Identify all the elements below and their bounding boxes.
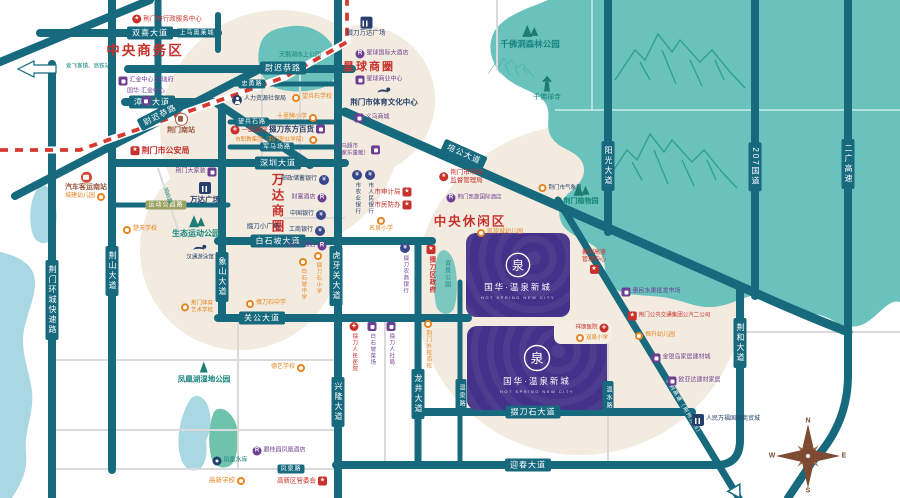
poi-label: 荆门大家装 — [175, 168, 205, 175]
orange-icon — [237, 477, 245, 485]
poi-label: 双泉小学 — [586, 335, 608, 342]
map-poi: 城建幼儿园 — [65, 193, 105, 201]
poi-label: 掇刀小广场 — [247, 223, 280, 231]
trees-icon — [572, 182, 591, 197]
poi-label: 襄荆高速管理中心 — [582, 250, 606, 264]
poi-label: 千佛洞森林公园 — [500, 39, 560, 49]
poi-label: 荆门市体育文化中心 — [350, 98, 418, 107]
poi-label: 掇刀石小学 — [315, 262, 322, 295]
map-poi: 金马超市（家乐量贩） — [336, 143, 380, 156]
orange-icon — [97, 193, 105, 201]
star-badge-icon — [403, 188, 412, 197]
dot-icon — [212, 457, 221, 466]
road-name-badge: 阳光大道 — [602, 141, 615, 191]
map-poi: 碧桂园凤凰酒店 — [252, 447, 305, 456]
poi-label: 市民防办 — [375, 201, 401, 209]
poi-label: 高新学校 — [209, 477, 235, 485]
poi-label: 义乌商城 — [365, 114, 389, 121]
map-poi: 楚天学校 — [123, 226, 157, 234]
poi-label: 名泉小学 — [369, 226, 393, 233]
bank-icon — [316, 210, 326, 220]
map-poi: 荆门市体育文化中心 — [350, 88, 418, 107]
road-name-badge: 凤泉路 — [277, 465, 304, 474]
labels-layer: 中央商务区星球商圈中央休闲区万达商圈双喜大道上马奥莱城漳河大道尉迟恭路尉迟恭路忠… — [0, 0, 900, 498]
star-badge-icon — [589, 265, 598, 274]
shop-icon — [371, 146, 380, 155]
map-poi: 名泉小学 — [369, 217, 393, 233]
poi-label: 望兵石学校 — [302, 94, 332, 101]
compass-east-label: E — [842, 453, 847, 460]
poi-label: 财富酒店 — [291, 194, 315, 201]
map-poi: 荆门公共交通集团公汽二公司 — [628, 312, 711, 321]
map-poi: 襄荆高速管理中心 — [582, 250, 606, 274]
poi-label: 荆门外校南校 — [425, 330, 432, 369]
shop-icon — [119, 77, 128, 86]
tree1-icon — [199, 361, 210, 374]
map-poi: 义乌商城 — [354, 114, 389, 123]
poi-label: 凤凰水库 — [223, 457, 247, 464]
map-poi: 千佛洞森林公园 — [500, 23, 560, 49]
poi-label: 一医南院 — [242, 126, 268, 134]
bank-icon — [319, 175, 329, 185]
poi-label: 凯旋城幼儿园 — [487, 229, 523, 236]
orange-icon — [297, 364, 305, 372]
orange-icon — [635, 332, 643, 340]
compass-north-label: N — [805, 418, 810, 425]
orange-icon — [576, 334, 584, 342]
map-poi: 市审计局 — [375, 188, 412, 197]
poi-label: 恒升幼儿园 — [645, 332, 675, 339]
map-poi: 国华·汇金中心 — [127, 88, 165, 105]
poi-label: 汽车客运南站 — [65, 184, 107, 192]
poi-label: 万达广场 — [190, 195, 220, 204]
road-name-badge: 掇刀石大道 — [506, 406, 561, 419]
poi-label: 掇刀区政府 — [427, 256, 435, 294]
map-poi: 掇刀小广场 — [247, 223, 280, 231]
road-name-badge: 荆和大道 — [734, 318, 747, 368]
map-poi: 金王子酒店 — [285, 242, 326, 251]
star-badge-icon — [318, 477, 327, 486]
poi-label: 人力资源社保局 — [244, 96, 286, 103]
map-poi: 市人民银行 — [365, 170, 375, 215]
poi-label: 汇金中心·金瑞府 — [130, 77, 174, 84]
poi-label: 德艺学校 — [271, 364, 295, 371]
road-name-badge: 深圳大道 — [255, 157, 301, 170]
poi-label: 荆门凯旋国际酒店 — [457, 195, 501, 202]
star-badge-icon — [628, 312, 637, 321]
poi-label: 城建幼儿园 — [65, 193, 95, 200]
map-poi: 荆门南站 — [167, 113, 195, 135]
road-name-badge: 上马奥莱城 — [176, 29, 217, 38]
poi-label: 欧亚达建材家居 — [678, 377, 720, 384]
dotcircle-icon — [538, 184, 546, 192]
map-poi: 十里牌小学 — [277, 114, 317, 122]
road-name-badge: 龙井大道 — [412, 369, 425, 419]
map-poi: 凤凰水库 — [212, 457, 247, 466]
map-poi: 荆门植物园 — [564, 182, 599, 206]
road-name-badge: 关公大道 — [239, 312, 285, 325]
shop-icon — [316, 125, 325, 134]
bank-icon — [400, 243, 410, 253]
map-poi: 汽车客运南站 — [65, 172, 107, 192]
shop-icon — [354, 114, 363, 123]
road-name-badge: 襄荆高速（荆州方向） — [664, 379, 702, 438]
map-poi: 荆门市公安局 — [131, 146, 190, 156]
poi-label: 市人民银行 — [367, 182, 374, 215]
road-name-badge: 荆山大道 — [106, 246, 119, 296]
building-icon — [692, 414, 704, 426]
map-poi: 荆门体育艺术学校 — [181, 300, 213, 313]
poi-label: 荆门植物园 — [564, 198, 599, 206]
map-poi: 双泉公园 — [442, 260, 449, 288]
poi-label: 楚天学校 — [133, 226, 157, 233]
map-poi: 中国银行 — [290, 210, 326, 220]
poi-label: 凤凰湖湿地公园 — [178, 375, 231, 384]
shop-icon — [208, 168, 217, 177]
poi-label: 市审计局 — [375, 188, 401, 196]
map-poi: 邮政储蓄银行 — [281, 175, 329, 185]
trees-icon — [187, 213, 206, 228]
map-poi: 人力资源社保局 — [232, 95, 286, 105]
poi-label: 星球国际大酒店 — [366, 50, 408, 57]
hotel-icon — [446, 194, 455, 203]
shop-icon — [667, 377, 676, 386]
poi-label: 掇刀农商银行 — [402, 255, 409, 294]
building-icon — [199, 182, 211, 194]
map-poi: 荆门外校南校 — [424, 320, 432, 369]
road-name-badge: 虎牙关大道 — [330, 246, 343, 306]
cross-icon — [231, 126, 240, 135]
star-badge-icon — [403, 201, 412, 210]
map-poi: 荆门市市场监督管理局 — [439, 169, 483, 185]
poi-label: 掇刀人民医院 — [351, 333, 358, 372]
poi-label: 掇刀东方百货 — [269, 125, 314, 134]
map-poi: 市民防办 — [375, 201, 412, 210]
poi-label: 荆门体育艺术学校 — [191, 300, 213, 313]
map-poi: 掇刀区政府 — [427, 245, 436, 294]
poi-label: 白石坡中学 — [300, 268, 307, 301]
poi-label: 惠民水果批发市场 — [632, 288, 680, 295]
bank-icon — [352, 170, 362, 180]
road-name-badge: 双喜大道 — [127, 27, 173, 40]
map-poi: 白石坡中学 — [299, 258, 307, 301]
pagoda-icon — [540, 76, 554, 93]
map-poi: 一医南院 — [231, 126, 268, 135]
map-poi: 爱飞客镇、高铁站 — [66, 64, 110, 71]
poi-label: 金银岛家居建材城 — [662, 354, 710, 361]
poi-label: 荆门市行政服务中心 — [143, 15, 202, 23]
orange-icon — [314, 252, 322, 260]
orange-icon — [299, 258, 307, 266]
bank-icon — [315, 226, 325, 236]
star-badge-icon — [427, 245, 436, 254]
orange-icon — [477, 229, 485, 237]
map-poi: 掇刀农商银行 — [400, 243, 410, 294]
map-poi: 望兵石学校 — [292, 94, 332, 102]
map-poi: 恒升幼儿园 — [635, 332, 675, 340]
poi-label: 中国银行 — [290, 211, 314, 218]
bus-icon — [81, 172, 92, 183]
hotel-icon — [318, 194, 327, 203]
road-name-badge: 207国道 — [749, 142, 762, 191]
swim-icon — [193, 245, 207, 254]
poi-label: 荆门南站 — [167, 127, 195, 135]
circle-star-icon — [439, 173, 448, 182]
orange-icon — [309, 136, 317, 144]
map-poi: 汇金中心·金瑞府 — [119, 77, 174, 86]
map-poi: 荆门市行政服务中心 — [132, 15, 202, 24]
shop-icon — [142, 97, 151, 106]
poi-label: 邮政储蓄银行 — [281, 176, 317, 183]
poi-label: 汉通游泳馆 — [186, 255, 214, 262]
poi-label: 人民万福国际商贸城 — [706, 416, 760, 423]
orange-icon — [123, 226, 131, 234]
poi-label: 白石坡菜场 — [369, 333, 376, 366]
shop-icon — [387, 322, 396, 331]
orange-icon — [424, 320, 432, 328]
compass-west-label: W — [769, 453, 776, 460]
poi-label: 掇刀万达广场 — [347, 30, 386, 38]
map-poi: 市农业银行 — [352, 170, 362, 215]
map-poi: 双泉小学 — [576, 334, 608, 342]
compass-south-label: S — [806, 488, 811, 495]
map-poi: 掇刀万达广场 — [347, 17, 386, 38]
poi-label: 金王子酒店 — [285, 242, 315, 249]
orange-icon — [246, 300, 254, 308]
trees-icon — [520, 23, 539, 38]
road-name-badge: 温泉路 — [456, 379, 467, 413]
circle-star-icon — [132, 15, 141, 24]
train-icon — [175, 113, 188, 126]
map-poi: 万达广场 — [190, 182, 220, 204]
map-poi: 人民万福国际商贸城 — [692, 414, 760, 426]
map-poi: 高新区管委会 — [277, 477, 327, 486]
map-poi: 金银岛家居建材城 — [651, 354, 710, 363]
poi-label: 双泉公园 — [442, 260, 449, 288]
map-poi: 德艺学校 — [271, 364, 305, 372]
poi-label: 荆门公共交通集团公汽二公司 — [639, 313, 711, 320]
orange-icon — [377, 217, 385, 225]
poi-label: 天鹅湖水上公园 — [279, 52, 321, 59]
shop-icon — [355, 76, 364, 85]
poi-label: 星球商业中心 — [366, 76, 402, 83]
map-poi: 凯旋城幼儿园 — [477, 229, 523, 237]
map-poi: 天鹅湖水上公园 — [279, 52, 321, 59]
map-poi: 欧亚达建材家居 — [667, 377, 720, 386]
district-zone-label: 星球商圈 — [343, 58, 395, 74]
bank-icon — [365, 170, 375, 180]
cross-icon — [350, 322, 359, 331]
map-poi: 千佛禅寺 — [533, 76, 561, 102]
poi-label: 工商银行 — [289, 227, 313, 234]
map-poi: 荆门大家装 — [175, 168, 216, 177]
poi-label: 十里牌小学 — [277, 114, 307, 121]
location-map: 泉 国华·温泉新城 HOT SPRING NEW CITY 泉 国华·温泉新城 … — [0, 0, 900, 498]
hotel-icon — [252, 447, 261, 456]
road-name-badge: 二广高速 — [842, 139, 855, 189]
person-icon — [232, 95, 242, 105]
poi-label: 高新区管委会 — [277, 477, 316, 485]
orange-icon — [309, 114, 317, 122]
road-name-badge: 迎春大道 — [505, 459, 551, 472]
orange-icon — [181, 303, 189, 311]
map-poi: 高新学校 — [209, 477, 245, 485]
map-poi: 市职教集团（荆门职业学院） — [235, 136, 317, 144]
hotel-icon — [355, 50, 364, 59]
poi-label: 荆门市公安局 — [142, 146, 190, 156]
star-badge-icon — [131, 147, 140, 156]
map-poi: 惠民水果批发市场 — [621, 288, 680, 297]
road-name-badge: 荆门环城快速路 — [46, 260, 59, 340]
road-name-badge: 忠勇路 — [238, 80, 265, 89]
poi-label: 祥康医院 — [575, 325, 597, 332]
poi-label: 市农业银行 — [354, 182, 361, 215]
district-zone-label: 中央休闲区 — [434, 211, 507, 230]
shop-icon — [651, 354, 660, 363]
poi-label: 市职教集团（荆门职业学院） — [235, 137, 307, 144]
poi-label: 生态运动公园 — [172, 229, 220, 239]
map-poi: 掇刀东方百货 — [269, 125, 325, 134]
poi-label: 国华·汇金中心 — [127, 88, 165, 95]
poi-label: 碧桂园凤凰酒店 — [263, 447, 305, 454]
road-name-badge: 温水路 — [603, 381, 614, 415]
poi-label: 爱飞客镇、高铁站 — [66, 64, 110, 71]
district-zone-label: 中央商务区 — [106, 39, 184, 59]
map-poi: 财富酒店 — [291, 194, 326, 203]
poi-label: 掇刀石中学 — [256, 300, 286, 307]
map-poi: 星球商业中心 — [355, 76, 402, 85]
map-poi: 生态运动公园 — [172, 213, 220, 239]
cross-icon — [600, 324, 609, 333]
road-name-badge: 尉迟恭路 — [260, 62, 306, 75]
poi-label: 金马超市（家乐量贩） — [336, 143, 369, 156]
map-poi: 掇刀人民医院 — [350, 322, 359, 372]
swim-icon — [377, 88, 391, 97]
road-name-badge: 兴隆大道 — [332, 377, 345, 427]
poi-label: 荆门市市场监督管理局 — [450, 169, 483, 185]
map-poi: 掇刀石小学 — [314, 252, 322, 295]
poi-label: 千佛禅寺 — [533, 94, 561, 102]
map-poi: 汉通游泳馆 — [186, 245, 214, 262]
map-poi: 工商银行 — [289, 226, 325, 236]
map-poi: 掇刀石中学 — [246, 300, 286, 308]
map-poi: 凤凰湖湿地公园 — [178, 361, 231, 384]
shop-icon — [621, 288, 630, 297]
map-poi: 白石坡菜场 — [368, 322, 377, 366]
orange-icon — [292, 94, 300, 102]
map-poi: 荆门凯旋国际酒店 — [446, 194, 501, 203]
hotel-icon — [318, 242, 327, 251]
map-poi: 星球国际大酒店 — [355, 50, 408, 59]
road-name-badge: 象山大道 — [216, 252, 229, 302]
building-icon — [360, 17, 372, 29]
map-poi: 祥康医院 — [575, 324, 608, 333]
poi-label: 掇刀人社局 — [388, 333, 395, 366]
shop-icon — [368, 322, 377, 331]
road-name-badge: 培公大道 — [440, 139, 487, 170]
map-poi: 掇刀人社局 — [387, 322, 396, 366]
